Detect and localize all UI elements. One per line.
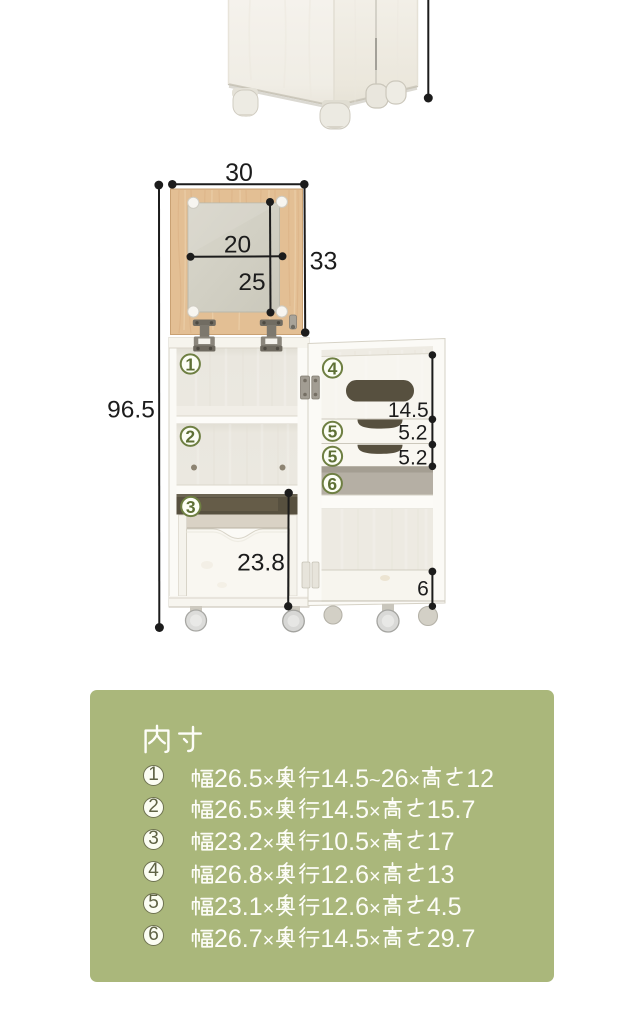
svg-text:5: 5 <box>328 447 338 467</box>
svg-text:30: 30 <box>225 159 253 187</box>
svg-text:96.5: 96.5 <box>107 396 155 423</box>
svg-text:6: 6 <box>417 577 429 600</box>
svg-text:1: 1 <box>185 354 195 374</box>
svg-text:5.2: 5.2 <box>398 446 427 469</box>
svg-text:3: 3 <box>186 497 196 517</box>
svg-text:4: 4 <box>328 358 338 378</box>
svg-text:23.8: 23.8 <box>237 549 285 576</box>
svg-text:5: 5 <box>328 422 338 442</box>
svg-text:2: 2 <box>185 427 195 447</box>
svg-text:20: 20 <box>224 231 251 258</box>
svg-text:6: 6 <box>327 474 337 494</box>
svg-text:5.2: 5.2 <box>398 421 427 444</box>
svg-text:14.5: 14.5 <box>388 399 429 422</box>
svg-text:25: 25 <box>238 269 265 296</box>
svg-text:33: 33 <box>310 248 338 276</box>
